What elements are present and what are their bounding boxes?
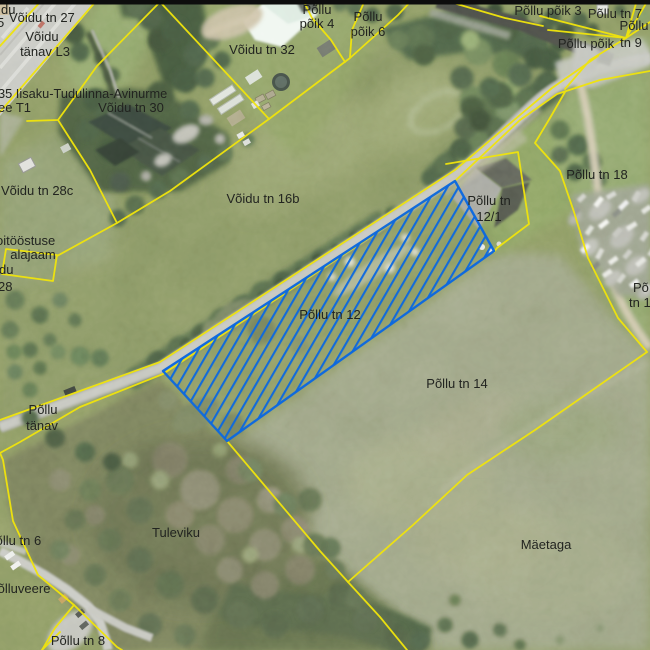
svg-text:Võidu tn 30: Võidu tn 30: [98, 100, 164, 115]
svg-text:12/1: 12/1: [476, 209, 501, 224]
svg-text:Põ: Põ: [633, 280, 649, 295]
svg-text:Tuleviku: Tuleviku: [152, 525, 200, 540]
svg-text:Põllu tn 6: Põllu tn 6: [0, 533, 41, 548]
svg-text:Põllu tn: Põllu tn: [467, 193, 510, 208]
svg-text:Võidu tn 16b: Võidu tn 16b: [226, 191, 299, 206]
svg-text:Põllu põik: Põllu põik: [558, 36, 615, 51]
svg-text:Põllu tn 18: Põllu tn 18: [566, 167, 627, 182]
svg-text:tn 1: tn 1: [629, 295, 650, 310]
svg-text:Võidu tn 28c: Võidu tn 28c: [1, 183, 74, 198]
svg-text:Põllu tn 12: Põllu tn 12: [299, 307, 360, 322]
svg-text:tn 9: tn 9: [620, 35, 642, 50]
svg-text:Põlluveere: Põlluveere: [0, 581, 50, 596]
svg-text:Võidu tn 32: Võidu tn 32: [229, 42, 295, 57]
svg-text:põik 4: põik 4: [300, 16, 335, 31]
svg-text:Võidu: Võidu: [25, 29, 58, 44]
svg-text:Põllu põik 3: Põllu põik 3: [514, 3, 581, 18]
svg-text:Mäetaga: Mäetaga: [521, 537, 572, 552]
svg-text:Põllu: Põllu: [29, 402, 58, 417]
svg-text:Põllu: Põllu: [354, 9, 383, 24]
svg-text:põik 6: põik 6: [351, 24, 386, 39]
svg-text:Põllu: Põllu: [620, 18, 649, 33]
svg-text:Põllu tn 14: Põllu tn 14: [426, 376, 487, 391]
svg-text:du: du: [0, 262, 13, 277]
svg-text:Põllu tn 8: Põllu tn 8: [51, 633, 105, 648]
svg-text:35 Iisaku-Tudulinna-Avinurme: 35 Iisaku-Tudulinna-Avinurme: [0, 86, 167, 101]
svg-text:oitööstuse: oitööstuse: [0, 233, 55, 248]
svg-text:5: 5: [0, 15, 4, 30]
svg-text:alajaam: alajaam: [10, 247, 56, 262]
svg-text:Võidu tn 27: Võidu tn 27: [9, 10, 75, 25]
svg-text:tänav: tänav: [26, 418, 58, 433]
svg-text:28: 28: [0, 279, 12, 294]
svg-text:tänav L3: tänav L3: [20, 44, 70, 59]
svg-text:ee T1: ee T1: [0, 100, 31, 115]
